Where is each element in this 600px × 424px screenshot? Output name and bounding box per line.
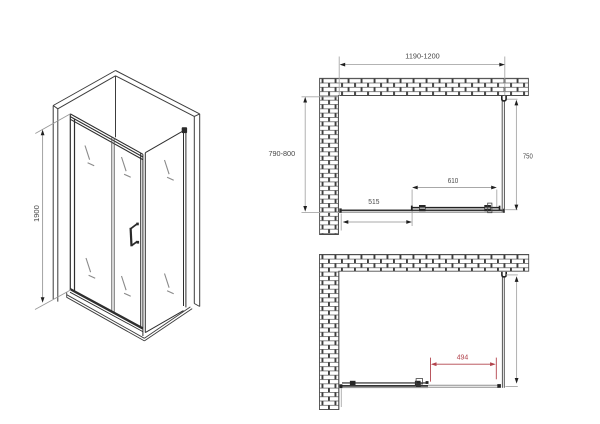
svg-text:494: 494: [457, 352, 469, 361]
svg-text:610: 610: [448, 176, 459, 185]
svg-text:1190-1200: 1190-1200: [405, 51, 439, 60]
svg-text:750: 750: [523, 152, 533, 161]
svg-text:1900: 1900: [32, 205, 41, 222]
svg-text:515: 515: [368, 197, 379, 206]
svg-text:790-800: 790-800: [268, 149, 295, 158]
